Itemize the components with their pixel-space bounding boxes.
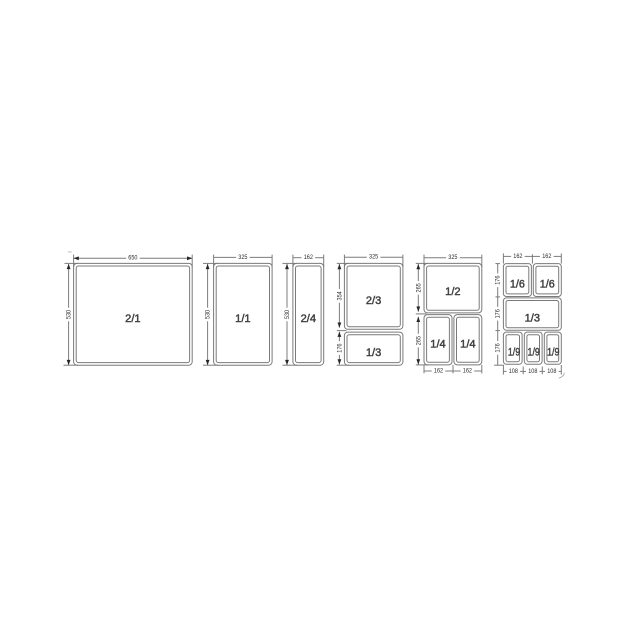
svg-text:265: 265	[415, 283, 422, 293]
svg-text:325: 325	[369, 254, 379, 261]
svg-text:162: 162	[304, 254, 314, 261]
svg-text:1/3: 1/3	[366, 347, 381, 359]
svg-text:108: 108	[528, 368, 538, 375]
svg-text:162: 162	[434, 367, 444, 374]
svg-text:325: 325	[238, 254, 248, 261]
svg-text:176: 176	[495, 309, 502, 319]
svg-text:354: 354	[336, 291, 343, 301]
svg-text:2/1: 2/1	[125, 313, 140, 325]
svg-text:1/6: 1/6	[510, 279, 525, 291]
svg-text:1/4: 1/4	[430, 338, 445, 350]
svg-text:530: 530	[205, 309, 212, 319]
svg-text:650: 650	[128, 255, 138, 262]
svg-text:1/9: 1/9	[547, 347, 559, 359]
svg-text:162: 162	[463, 367, 473, 374]
svg-text:162: 162	[513, 253, 523, 260]
svg-text:1/2: 1/2	[445, 286, 460, 298]
svg-text:325: 325	[448, 254, 458, 261]
svg-text:1/6: 1/6	[540, 279, 555, 291]
svg-text:1/9: 1/9	[508, 347, 520, 359]
svg-text:530: 530	[66, 309, 73, 319]
svg-text:2/3: 2/3	[366, 295, 381, 307]
svg-text:176: 176	[495, 343, 502, 353]
svg-text:265: 265	[415, 336, 422, 346]
svg-text:1/1: 1/1	[235, 313, 250, 325]
svg-text:2/4: 2/4	[301, 313, 316, 325]
svg-text:176: 176	[336, 343, 343, 353]
svg-text:108: 108	[509, 368, 519, 375]
svg-text:1/9: 1/9	[528, 347, 540, 359]
svg-text:1/3: 1/3	[525, 313, 540, 325]
svg-text:1/4: 1/4	[460, 338, 475, 350]
svg-text:162: 162	[542, 253, 552, 260]
svg-text:108: 108	[547, 368, 557, 375]
svg-text:530: 530	[284, 309, 291, 319]
svg-text:176: 176	[495, 275, 502, 285]
